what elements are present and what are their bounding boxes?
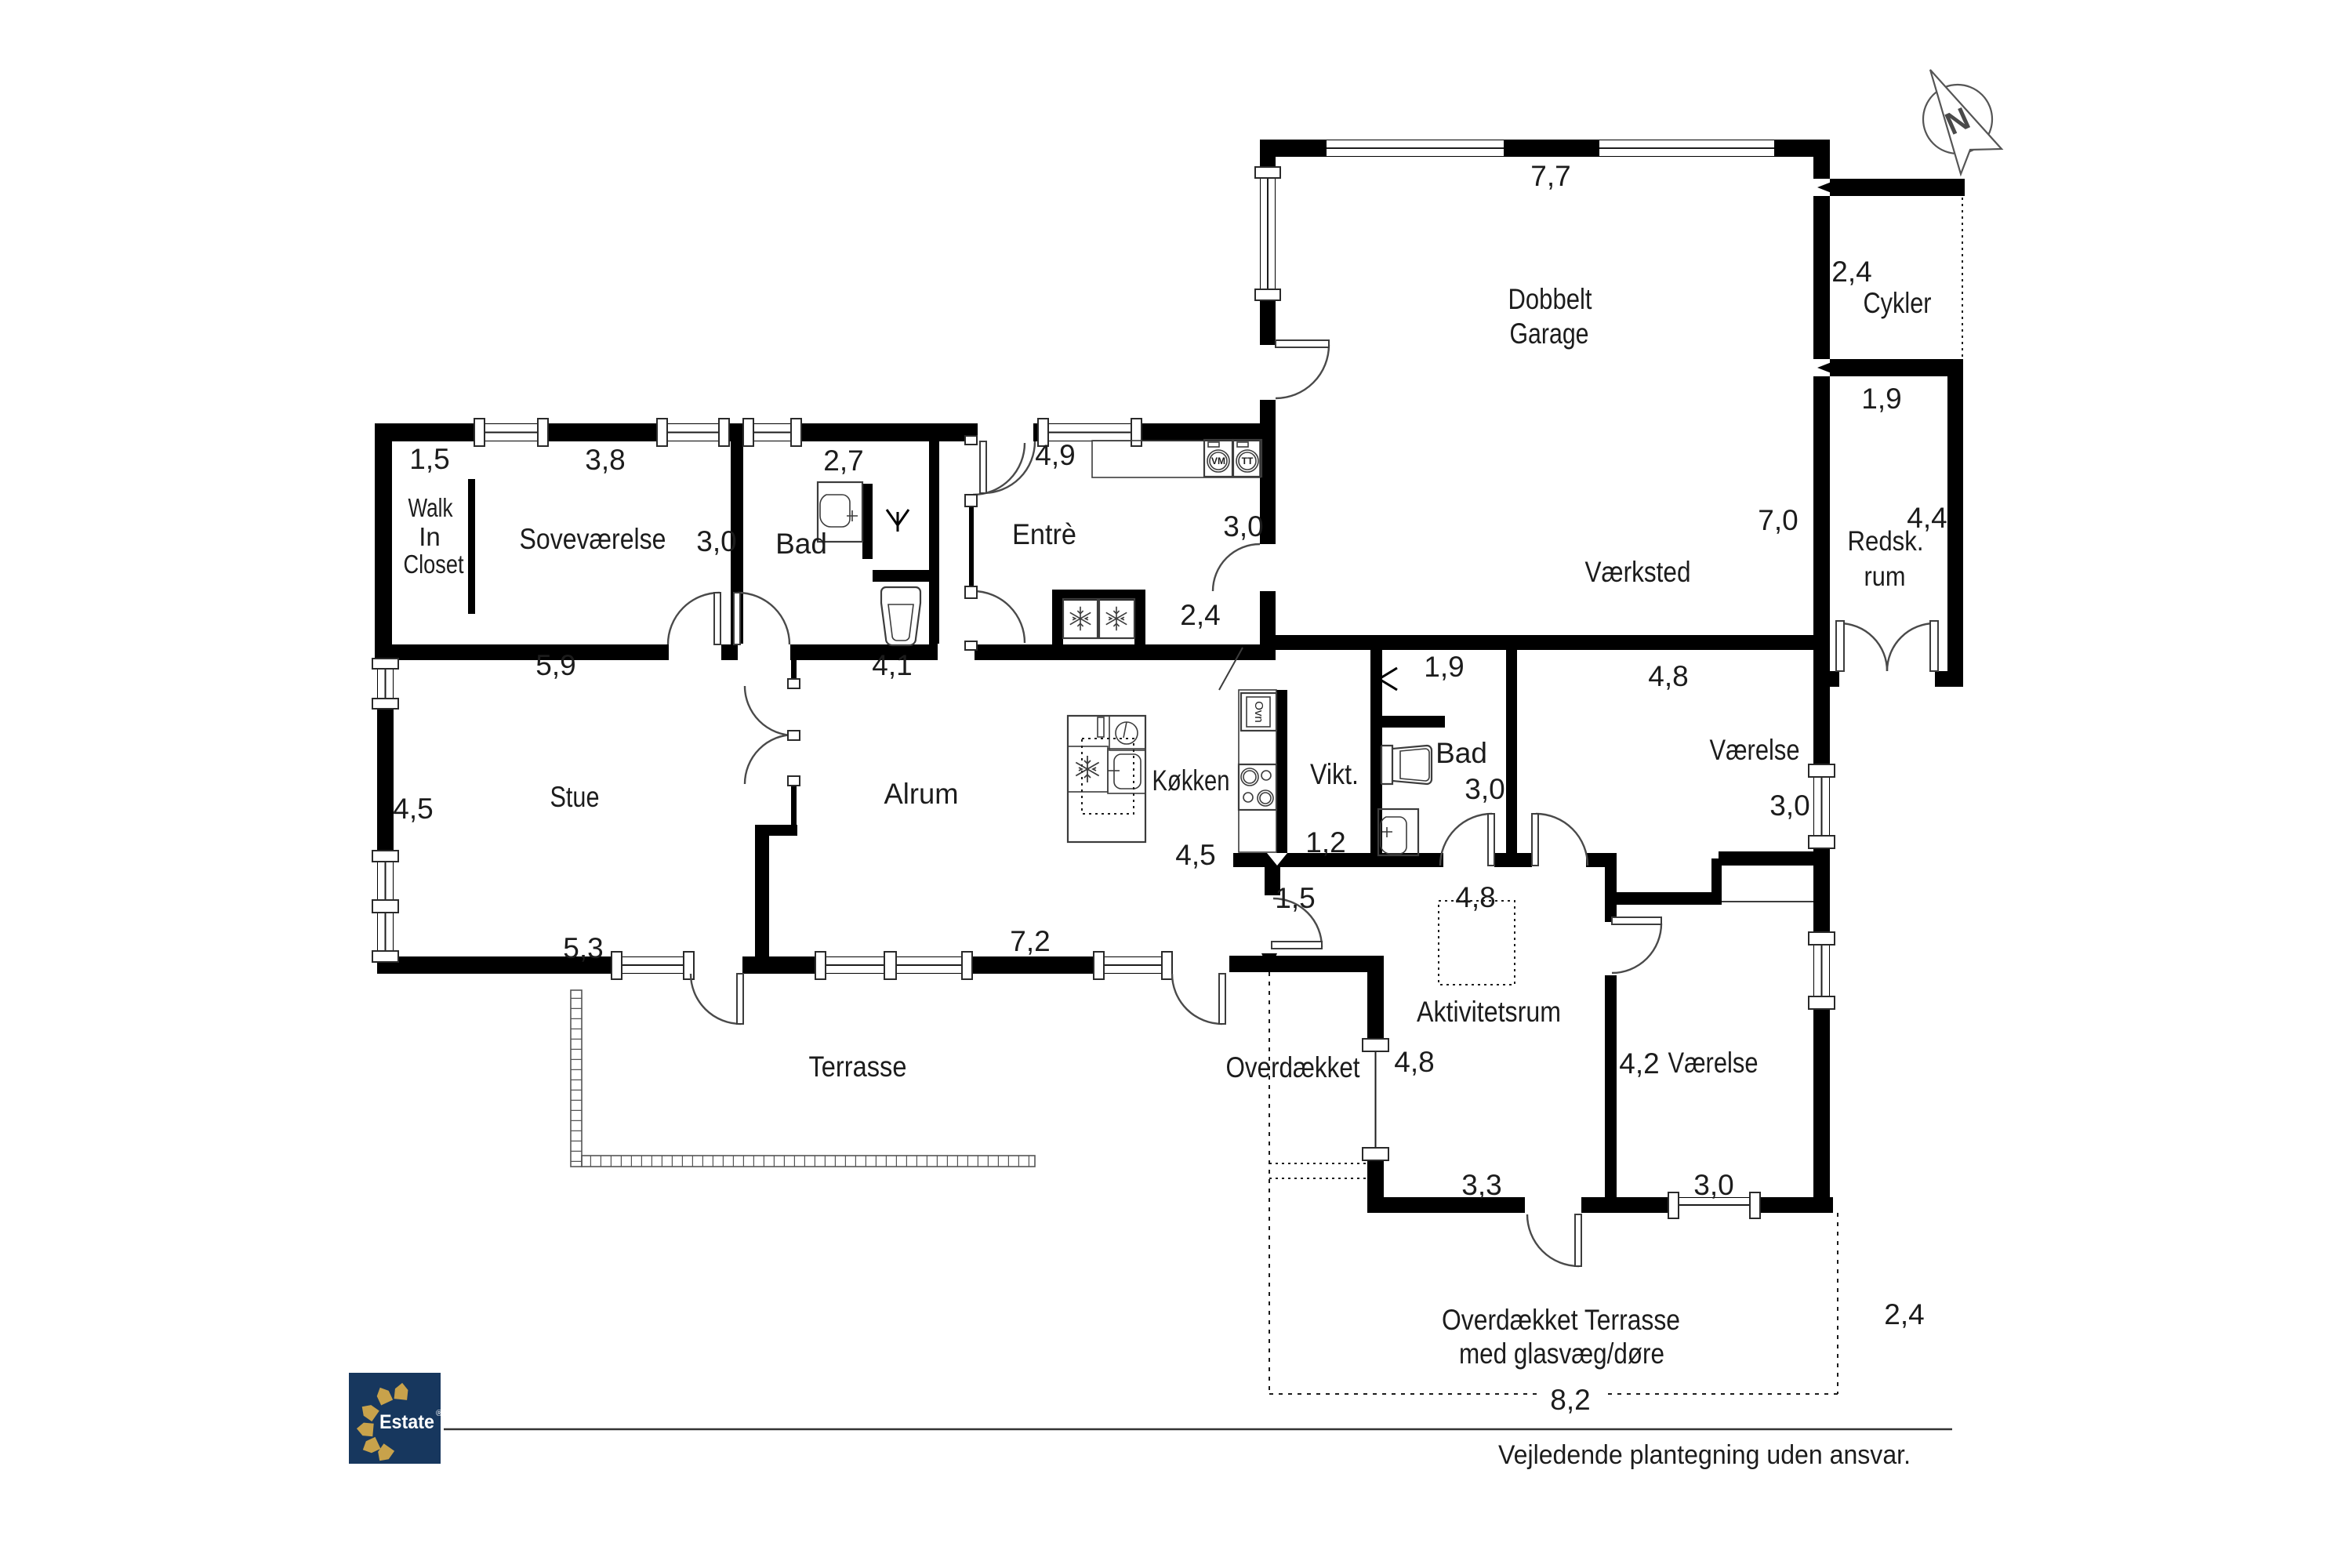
svg-text:In: In [419, 522, 441, 551]
svg-text:3,0: 3,0 [1223, 510, 1263, 543]
svg-text:VM: VM [1211, 456, 1225, 466]
svg-text:4,1: 4,1 [872, 649, 912, 681]
svg-text:Cykler: Cykler [1864, 287, 1932, 319]
svg-text:Værksted: Værksted [1585, 556, 1691, 588]
svg-text:1,5: 1,5 [1275, 882, 1315, 914]
svg-text:7,2: 7,2 [1010, 925, 1050, 957]
svg-text:®: ® [436, 1409, 442, 1418]
svg-text:4,8: 4,8 [1455, 881, 1495, 913]
svg-text:Soveværelse: Soveværelse [520, 523, 666, 555]
svg-text:Aktivitetsrum: Aktivitetsrum [1417, 996, 1561, 1028]
svg-text:5,3: 5,3 [563, 932, 603, 964]
svg-text:Entrè: Entrè [1012, 518, 1076, 550]
svg-text:Overdækket Terrasse: Overdækket Terrasse [1442, 1304, 1680, 1336]
svg-text:Bad: Bad [1436, 737, 1487, 769]
svg-text:Estate: Estate [379, 1411, 434, 1433]
svg-text:Closet: Closet [404, 550, 464, 579]
svg-text:Alrum: Alrum [884, 778, 959, 810]
svg-text:Walk: Walk [408, 493, 453, 522]
svg-text:2,4: 2,4 [1180, 599, 1220, 631]
svg-text:2,7: 2,7 [823, 445, 863, 477]
svg-text:4,2: 4,2 [1619, 1047, 1659, 1080]
svg-text:4,9: 4,9 [1035, 439, 1075, 471]
svg-text:2,4: 2,4 [1884, 1298, 1924, 1330]
svg-text:7,7: 7,7 [1530, 160, 1570, 192]
svg-text:2,4: 2,4 [1831, 256, 1871, 288]
svg-text:1,9: 1,9 [1424, 651, 1464, 683]
svg-text:3,0: 3,0 [696, 525, 736, 557]
svg-text:rum: rum [1864, 561, 1906, 592]
svg-text:Vejledende plantegning uden an: Vejledende plantegning uden ansvar. [1498, 1440, 1911, 1470]
svg-text:Vikt.: Vikt. [1310, 758, 1359, 790]
svg-text:8,2: 8,2 [1550, 1384, 1590, 1416]
svg-text:3,8: 3,8 [585, 444, 625, 476]
svg-text:4,5: 4,5 [1175, 839, 1215, 871]
svg-text:3,3: 3,3 [1461, 1169, 1501, 1201]
svg-text:Overdækket: Overdækket [1226, 1051, 1361, 1083]
svg-text:Bad: Bad [775, 528, 827, 560]
svg-text:TT: TT [1242, 456, 1254, 466]
svg-text:Terrasse: Terrasse [809, 1051, 907, 1083]
svg-text:Dobbelt: Dobbelt [1508, 283, 1593, 315]
svg-text:1,9: 1,9 [1861, 383, 1901, 415]
svg-text:3,0: 3,0 [1769, 789, 1809, 822]
svg-text:5,9: 5,9 [535, 649, 575, 681]
svg-text:4,8: 4,8 [1648, 660, 1688, 692]
svg-text:4,8: 4,8 [1394, 1046, 1434, 1078]
svg-text:Redsk.: Redsk. [1848, 526, 1924, 557]
svg-text:1,2: 1,2 [1305, 826, 1345, 858]
svg-text:7,0: 7,0 [1758, 504, 1798, 536]
svg-text:Stue: Stue [550, 781, 600, 813]
svg-text:Ovn: Ovn [1252, 701, 1265, 723]
svg-text:1,5: 1,5 [409, 443, 449, 475]
svg-text:4,5: 4,5 [393, 793, 433, 825]
svg-text:3,0: 3,0 [1693, 1169, 1733, 1201]
svg-text:3,0: 3,0 [1465, 773, 1504, 805]
svg-text:med glasvæg/døre: med glasvæg/døre [1459, 1338, 1664, 1370]
svg-text:Køkken: Køkken [1152, 764, 1230, 797]
svg-text:Værelse: Værelse [1710, 734, 1800, 766]
svg-text:Værelse: Værelse [1668, 1047, 1759, 1079]
svg-text:Garage: Garage [1510, 318, 1589, 350]
